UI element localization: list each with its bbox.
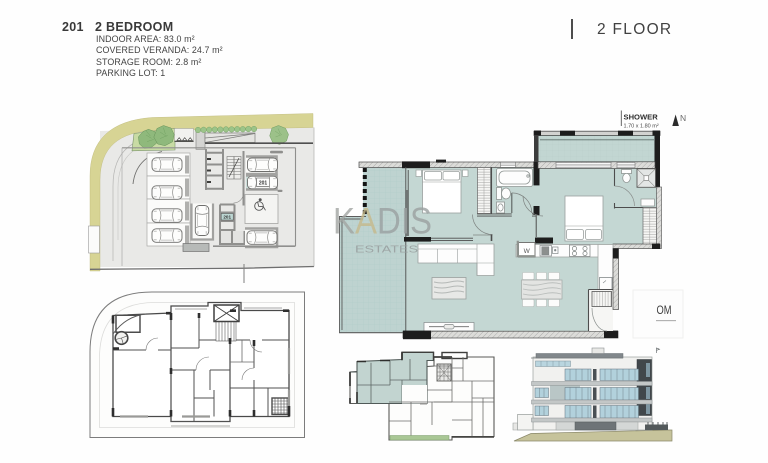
svg-text:1.70 x 1.80 m²: 1.70 x 1.80 m²	[624, 123, 659, 129]
svg-text:OM: OM	[657, 305, 672, 317]
svg-text:201: 201	[223, 215, 231, 220]
svg-text:W: W	[524, 248, 531, 255]
svg-text:201: 201	[259, 181, 268, 187]
svg-text:SHOWER: SHOWER	[624, 113, 659, 122]
svg-text:ESTATES: ESTATES	[355, 244, 418, 256]
svg-text:KADIS: KADIS	[333, 201, 432, 242]
svg-text:N: N	[680, 113, 686, 123]
